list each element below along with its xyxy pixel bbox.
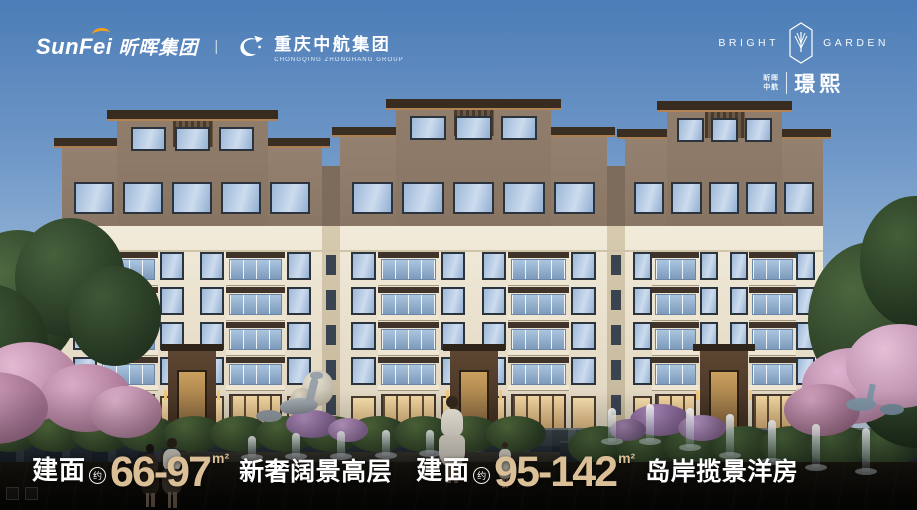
penthouse-roof bbox=[386, 99, 561, 110]
balcony-slab bbox=[508, 315, 569, 321]
balcony-glass bbox=[381, 329, 436, 350]
project-word-right: GARDEN bbox=[823, 37, 889, 49]
fountain-jet bbox=[646, 404, 654, 442]
fountain-jet bbox=[608, 408, 616, 442]
project-sub-line2: 中航 bbox=[763, 83, 779, 92]
project-sub-brand: 昕晖 中航 bbox=[763, 74, 779, 92]
headline-segment-flat: 建面 约 95-142 m² 岛岸揽景洋房 bbox=[416, 450, 798, 490]
window bbox=[482, 287, 507, 315]
zhonghang-name-cn: 重庆中航集团 bbox=[274, 30, 404, 55]
penthouse-window bbox=[221, 182, 261, 214]
penthouse-window bbox=[503, 182, 544, 214]
balcony-slab bbox=[508, 385, 569, 391]
balcony-beam bbox=[749, 252, 796, 258]
balcony-slab bbox=[378, 385, 439, 391]
window bbox=[730, 252, 748, 280]
watermark-glyph bbox=[6, 487, 19, 500]
balcony-beam bbox=[226, 322, 285, 328]
balcony-slab bbox=[378, 350, 439, 356]
balcony-beam bbox=[508, 287, 569, 293]
balcony-glass bbox=[229, 329, 282, 350]
penthouse-window bbox=[677, 118, 704, 142]
area-range: 95-142 bbox=[494, 454, 616, 490]
joint-window bbox=[611, 290, 621, 310]
window bbox=[633, 357, 651, 385]
window bbox=[287, 287, 311, 315]
balcony-beam bbox=[652, 252, 699, 258]
window bbox=[200, 287, 224, 315]
fountain-splash bbox=[855, 468, 877, 475]
penthouse-window bbox=[784, 182, 814, 214]
balcony-glass bbox=[511, 329, 566, 350]
balcony-beam bbox=[226, 252, 285, 258]
project-word-left: BRIGHT bbox=[718, 37, 779, 49]
balcony-slab bbox=[378, 315, 439, 321]
area-unit: m² bbox=[212, 450, 229, 466]
approx-badge: 约 bbox=[473, 467, 490, 484]
balcony-slab bbox=[508, 280, 569, 286]
person-head bbox=[446, 396, 458, 408]
project-name: 璟熙 bbox=[794, 68, 844, 98]
window bbox=[700, 252, 718, 280]
project-logo-row1: BRIGHT GARDEN bbox=[718, 22, 889, 64]
window bbox=[287, 322, 311, 350]
entrance-canopy bbox=[693, 344, 755, 351]
entrance-lamp bbox=[499, 390, 502, 400]
blossom-canopy bbox=[90, 386, 162, 438]
window bbox=[441, 287, 466, 315]
approx-badge: 约 bbox=[89, 467, 106, 484]
balcony-glass bbox=[229, 364, 282, 385]
penthouse-window bbox=[554, 182, 595, 214]
blossom-canopy bbox=[784, 384, 860, 436]
balcony-glass bbox=[511, 294, 566, 315]
deer-sculpture bbox=[880, 404, 904, 415]
window bbox=[700, 287, 718, 315]
fountain-splash bbox=[601, 438, 623, 445]
window bbox=[441, 252, 466, 280]
penthouse-window bbox=[402, 182, 443, 214]
entrance-lamp bbox=[696, 390, 699, 400]
penthouse-window bbox=[352, 182, 393, 214]
zhonghang-logo: 重庆中航集团 CHONGQING ZHONGHANG GROUP bbox=[234, 30, 404, 63]
window bbox=[633, 287, 651, 315]
window bbox=[287, 252, 311, 280]
poster-canvas: SunFei 昕晖集团 | 重庆中航集团 CHONGQING ZHONGHANG… bbox=[0, 0, 917, 510]
flower-bush bbox=[328, 418, 368, 442]
dragon-icon bbox=[234, 34, 266, 60]
entrance-lamp bbox=[217, 390, 220, 400]
penthouse-window bbox=[501, 116, 537, 140]
window bbox=[571, 252, 596, 280]
balcony-slab bbox=[652, 385, 699, 391]
entrance-lamp bbox=[749, 390, 752, 400]
penthouse-window bbox=[175, 127, 210, 151]
balcony-beam bbox=[378, 357, 439, 363]
balcony-slab bbox=[749, 350, 796, 356]
balcony-beam bbox=[226, 357, 285, 363]
window bbox=[571, 357, 596, 385]
fountain-jet bbox=[862, 428, 870, 472]
fountain-jet bbox=[812, 424, 820, 468]
balcony-glass bbox=[752, 259, 793, 280]
zhonghang-text: 重庆中航集团 CHONGQING ZHONGHANG GROUP bbox=[274, 30, 404, 63]
balcony-glass bbox=[655, 259, 696, 280]
balcony-beam bbox=[749, 287, 796, 293]
balcony-slab bbox=[749, 315, 796, 321]
balcony-slab bbox=[749, 385, 796, 391]
sunfei-swoosh-icon bbox=[91, 27, 110, 41]
window bbox=[160, 287, 184, 315]
logo-divider: | bbox=[214, 38, 218, 55]
penthouse-window bbox=[219, 127, 254, 151]
entrance-canopy bbox=[443, 344, 505, 351]
window bbox=[351, 287, 376, 315]
penthouse-window bbox=[131, 127, 166, 151]
window bbox=[482, 252, 507, 280]
header-left-logos: SunFei 昕晖集团 | 重庆中航集团 CHONGQING ZHONGHANG… bbox=[36, 30, 404, 63]
balcony-glass bbox=[655, 364, 696, 385]
balcony-glass bbox=[229, 259, 282, 280]
window bbox=[633, 322, 651, 350]
balcony-beam bbox=[652, 322, 699, 328]
window bbox=[633, 252, 651, 280]
window bbox=[351, 357, 376, 385]
area-unit: m² bbox=[618, 450, 635, 466]
balcony-slab bbox=[226, 280, 285, 286]
penthouse-window bbox=[74, 182, 114, 214]
balcony-beam bbox=[508, 252, 569, 258]
balcony-slab bbox=[652, 280, 699, 286]
balcony-slab bbox=[226, 350, 285, 356]
balcony-beam bbox=[378, 322, 439, 328]
balcony-beam bbox=[652, 357, 699, 363]
deer-sculpture bbox=[310, 372, 323, 379]
balcony-glass bbox=[752, 364, 793, 385]
window bbox=[730, 287, 748, 315]
window bbox=[200, 252, 224, 280]
joint-window bbox=[611, 255, 621, 275]
project-sub-line1: 昕晖 bbox=[763, 74, 779, 83]
balcony-glass bbox=[381, 259, 436, 280]
hedge-bush bbox=[486, 416, 546, 452]
balcony-slab bbox=[378, 280, 439, 286]
project-logo-divider bbox=[786, 72, 787, 94]
balcony-glass bbox=[752, 329, 793, 350]
window bbox=[571, 287, 596, 315]
person-head bbox=[167, 438, 177, 448]
balcony-slab bbox=[749, 280, 796, 286]
balcony-beam bbox=[378, 287, 439, 293]
penthouse-roof bbox=[657, 101, 792, 112]
balcony-slab bbox=[652, 350, 699, 356]
penthouse-window bbox=[123, 182, 163, 214]
balcony-glass bbox=[381, 364, 436, 385]
balcony-slab bbox=[226, 385, 285, 391]
penthouse-window bbox=[455, 116, 491, 140]
balcony-slab bbox=[226, 315, 285, 321]
sunfei-logo: SunFei 昕晖集团 bbox=[36, 33, 198, 60]
sunfei-brand-cn: 昕晖集团 bbox=[118, 33, 198, 60]
joint-window bbox=[326, 325, 336, 345]
area-label: 建面 bbox=[32, 450, 86, 487]
balcony-beam bbox=[508, 357, 569, 363]
area-range: 66-97 bbox=[110, 454, 210, 490]
entrance-canopy bbox=[161, 344, 223, 351]
penthouse-window bbox=[671, 182, 701, 214]
balcony-glass bbox=[752, 294, 793, 315]
joint-window bbox=[611, 325, 621, 345]
balcony-slab bbox=[508, 350, 569, 356]
headline: 建面 约 66-97 m² 新奢阔景高层 建面 约 95-142 m² 岛岸揽景… bbox=[32, 450, 798, 490]
balcony-glass bbox=[655, 294, 696, 315]
product-desc: 新奢阔景高层 bbox=[239, 452, 392, 488]
zhonghang-name-en: CHONGQING ZHONGHANG GROUP bbox=[274, 57, 404, 63]
person-torso bbox=[441, 409, 463, 436]
window bbox=[160, 252, 184, 280]
penthouse-window bbox=[410, 116, 446, 140]
joint-window bbox=[611, 360, 621, 380]
balcony-slab bbox=[652, 315, 699, 321]
penthouse-window bbox=[453, 182, 494, 214]
headline-segment-highrise: 建面 约 66-97 m² 新奢阔景高层 bbox=[32, 450, 392, 490]
project-logo: BRIGHT GARDEN 昕晖 中航 璟熙 bbox=[718, 22, 889, 98]
project-logo-row2: 昕晖 中航 璟熙 bbox=[763, 68, 844, 98]
joint-window bbox=[326, 290, 336, 310]
product-desc: 岛岸揽景洋房 bbox=[645, 452, 798, 488]
deer-sculpture bbox=[256, 410, 282, 422]
fountain-splash bbox=[805, 464, 827, 471]
balcony-beam bbox=[749, 357, 796, 363]
penthouse-window bbox=[709, 182, 739, 214]
penthouse-window bbox=[634, 182, 664, 214]
tree-canopy bbox=[69, 266, 161, 366]
fountain-splash bbox=[639, 438, 661, 445]
window bbox=[351, 252, 376, 280]
balcony-glass bbox=[381, 294, 436, 315]
window bbox=[351, 322, 376, 350]
joint-window bbox=[326, 255, 336, 275]
area-label: 建面 bbox=[416, 450, 470, 487]
penthouse-roof bbox=[107, 110, 278, 121]
penthouse-window bbox=[746, 182, 776, 214]
balcony-beam bbox=[508, 322, 569, 328]
balcony-beam bbox=[226, 287, 285, 293]
balcony-glass bbox=[655, 329, 696, 350]
balcony-glass bbox=[511, 259, 566, 280]
penthouse-window bbox=[711, 118, 738, 142]
balcony-glass bbox=[229, 294, 282, 315]
penthouse-window bbox=[172, 182, 212, 214]
window bbox=[796, 252, 814, 280]
balcony-beam bbox=[652, 287, 699, 293]
garden-emblem-icon bbox=[788, 22, 814, 64]
window bbox=[571, 322, 596, 350]
entrance-lamp bbox=[164, 390, 167, 400]
balcony-beam bbox=[378, 252, 439, 258]
penthouse-window bbox=[745, 118, 772, 142]
fountain-jet bbox=[686, 408, 694, 448]
balcony-beam bbox=[749, 322, 796, 328]
penthouse-window bbox=[270, 182, 310, 214]
balcony-glass bbox=[511, 364, 566, 385]
